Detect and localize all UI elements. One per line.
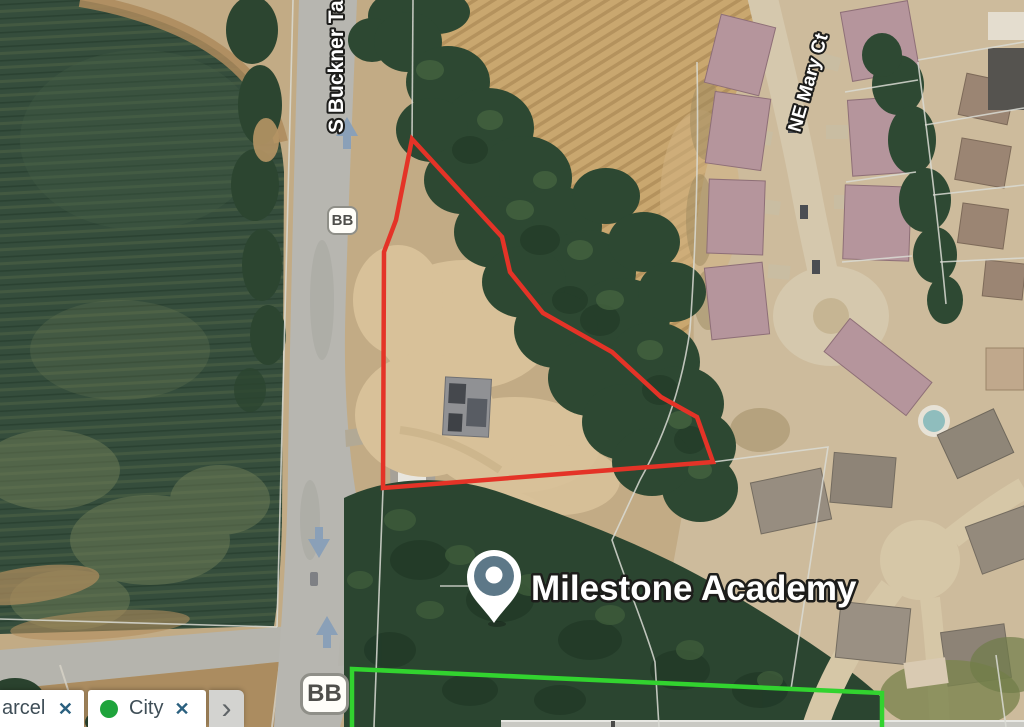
place-label: Milestone Academy: [531, 569, 857, 608]
road-label-s-buckner: S Buckner Ta: [325, 0, 348, 133]
chip-parcel-label: arcel: [2, 697, 45, 720]
map-viewport[interactable]: S Buckner Ta NE Mary Ct Milestone Academ…: [0, 0, 1024, 727]
chip-parcel[interactable]: arcel ✕: [0, 690, 84, 727]
city-dot-icon: [100, 700, 118, 718]
terrain: [0, 0, 1024, 727]
satellite-map[interactable]: S Buckner Ta NE Mary Ct Milestone Academ…: [0, 0, 1024, 727]
layer-filter-bar: arcel ✕ City ✕ ›: [0, 690, 244, 727]
building-under-construction: [443, 377, 492, 437]
chip-city-label: City: [129, 697, 163, 720]
chevron-right-icon: ›: [222, 694, 232, 724]
pool: [923, 410, 945, 432]
chip-city[interactable]: City ✕: [88, 690, 206, 727]
route-badge-bb: BB: [327, 206, 358, 235]
close-icon[interactable]: ✕: [58, 700, 73, 718]
close-icon[interactable]: ✕: [174, 700, 189, 718]
route-badge-bb: BB: [300, 673, 349, 715]
expand-chips-button[interactable]: ›: [209, 690, 244, 727]
